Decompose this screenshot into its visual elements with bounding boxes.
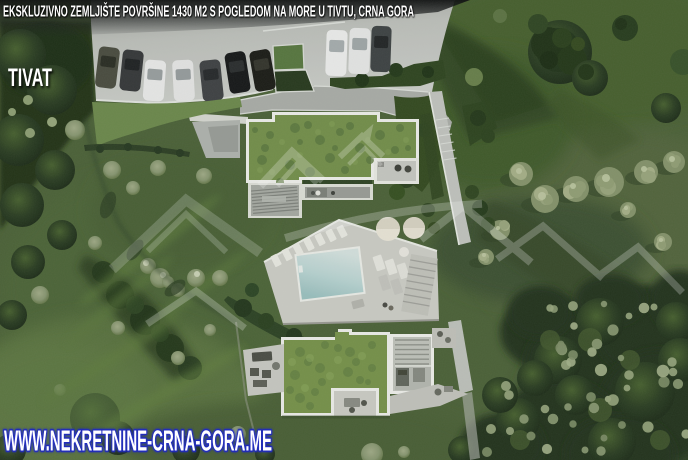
svg-text:TIVAT: TIVAT (8, 64, 52, 92)
svg-text:EKSKLUZIVNO ZEMLJIŠTE POVRŠINE: EKSKLUZIVNO ZEMLJIŠTE POVRŠINE 1430 M2 S… (3, 3, 414, 21)
svg-text:WWW.NEKRETNINE-CRNA-GORA.ME: WWW.NEKRETNINE-CRNA-GORA.ME (4, 426, 272, 458)
